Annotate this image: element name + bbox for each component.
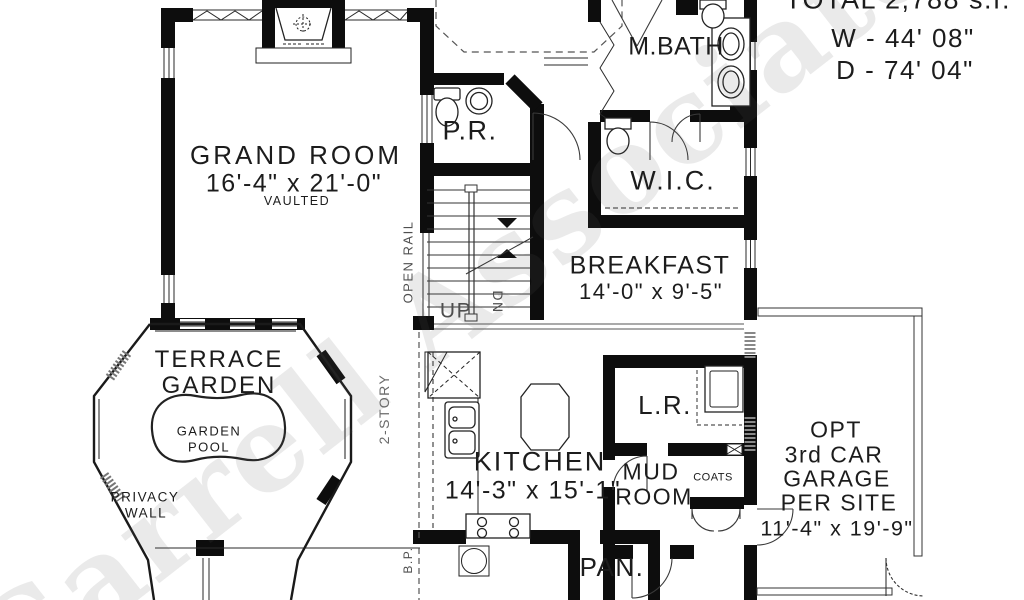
floorplan-page: Garrell Associates TOTAL 2,788 s.f. W - … xyxy=(0,0,1024,600)
label-width-dim: W - 44' 08" xyxy=(831,25,974,51)
label-kitchen-dims: 14'-3" x 15'-1" xyxy=(445,479,621,504)
label-grand-room-dims: 16'-4" x 21'-0" xyxy=(206,172,382,197)
label-breakfast: BREAKFAST xyxy=(570,254,731,279)
label-grand-room-vaulted: VAULTED xyxy=(264,195,330,208)
label-pantry: PAN. xyxy=(580,554,645,580)
label-wic: W.I.C. xyxy=(630,168,716,195)
label-garage-line3: GARAGE xyxy=(783,468,890,491)
label-laundry-room: L.R. xyxy=(638,392,692,418)
label-up: UP xyxy=(440,301,472,322)
label-total-sf: TOTAL 2,788 s.f. xyxy=(785,0,1011,14)
label-garage-line4: PER SITE xyxy=(781,492,898,515)
label-dn: DN xyxy=(491,290,505,313)
label-master-bath: M.BATH xyxy=(628,35,724,60)
label-breakfast-dims: 14'-0" x 9'-5" xyxy=(579,281,723,303)
label-mud-line2: ROOM xyxy=(615,486,693,509)
label-terrace-line2: GARDEN xyxy=(162,374,277,398)
label-bp: B.P. xyxy=(402,546,414,573)
label-grand-room: GRAND ROOM xyxy=(190,142,402,168)
label-two-story: 2-STORY xyxy=(377,374,391,445)
label-privacy-line1: PRIVACY xyxy=(111,490,180,504)
label-kitchen: KITCHEN xyxy=(474,449,607,476)
label-garage-line1: OPT xyxy=(810,419,862,442)
label-pool-line2: POOL xyxy=(188,441,230,454)
label-mud-line1: MUD xyxy=(623,461,680,484)
label-garage-dims: 11'-4" x 19'-9" xyxy=(760,518,913,540)
label-coats: COATS xyxy=(693,473,733,484)
label-privacy-line2: WALL xyxy=(125,506,167,520)
label-powder-room: P.R. xyxy=(442,118,497,145)
label-terrace-line1: TERRACE xyxy=(155,348,284,372)
label-depth-dim: D - 74' 04" xyxy=(836,57,974,83)
label-pool-line1: GARDEN xyxy=(177,425,242,438)
label-garage-line2: 3rd CAR xyxy=(785,444,884,467)
label-open-rail: OPEN RAIL xyxy=(402,221,415,304)
